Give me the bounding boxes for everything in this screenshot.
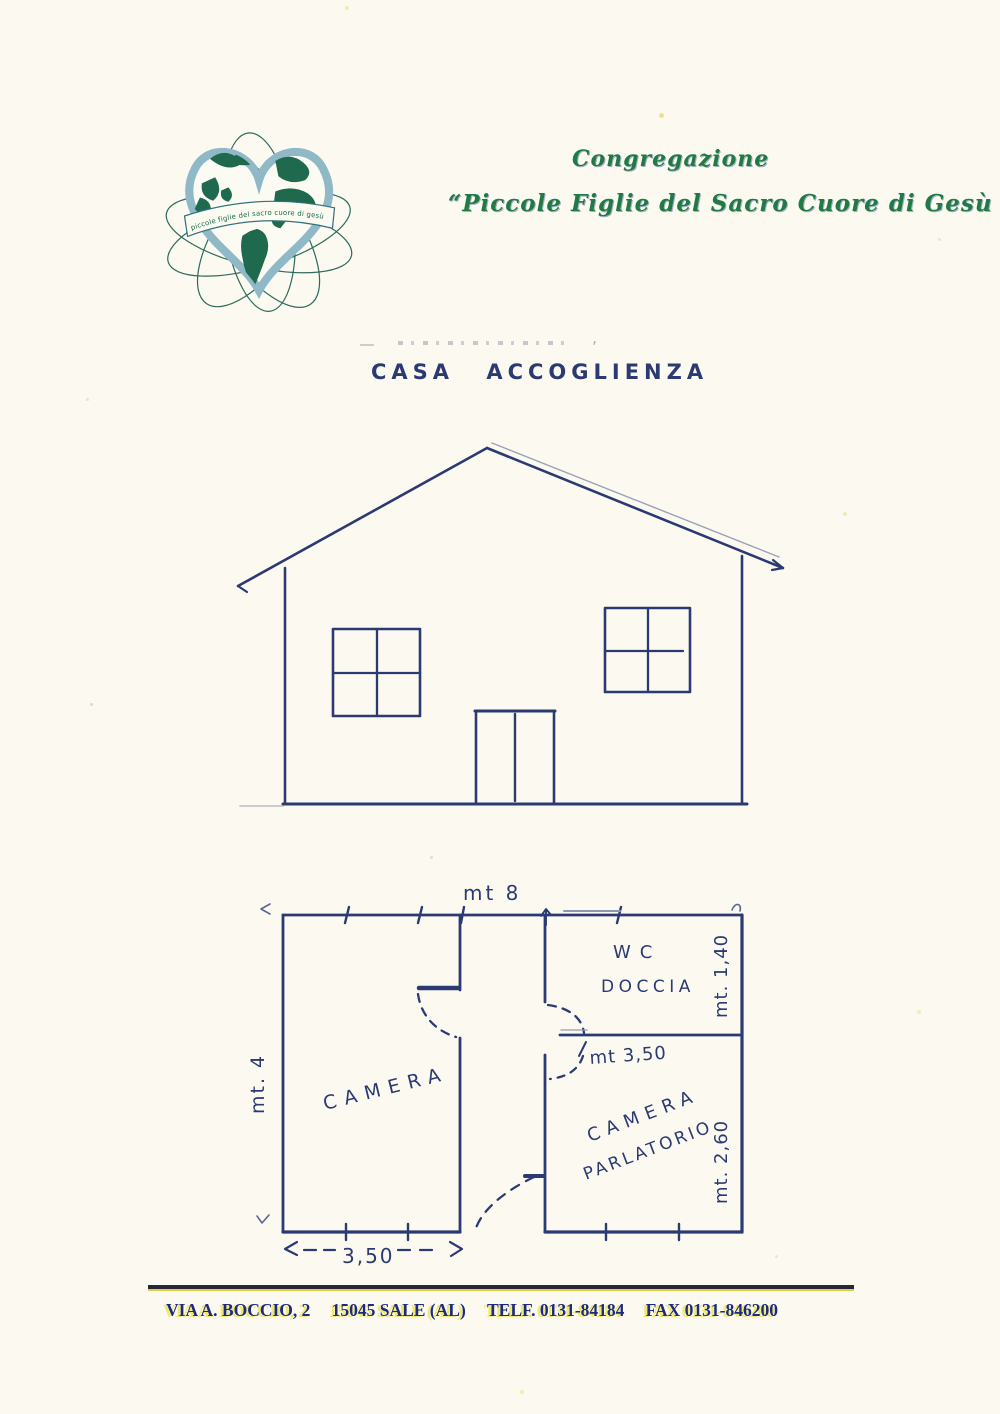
- plan-wc-width-label: mt. 1,40: [711, 934, 732, 1018]
- plan-entry-door: [476, 1176, 543, 1228]
- plan-corner-marks: [257, 904, 740, 1223]
- plan-parlatorio-door: [550, 1056, 583, 1079]
- footer-fax: FAX 0131-846200: [646, 1300, 778, 1321]
- plan-mid-dim-tick: [579, 1042, 586, 1056]
- footer-address-row: VIA A. BOCCIO, 2 15045 SALE (AL) TELF. 0…: [166, 1300, 778, 1321]
- page-title: CASA ACCOGLIENZA: [371, 360, 708, 384]
- congregation-title-line1: Congregazione: [572, 146, 769, 172]
- plan-mid-dim-label: mt 3,50: [589, 1043, 668, 1069]
- erased-pencil-tick: ,: [592, 328, 597, 347]
- congregation-logo: piccole figlie del sacro cuore di gesù: [156, 116, 362, 316]
- erased-pencil-line: [398, 341, 568, 345]
- plan-camera-door: [418, 988, 459, 1037]
- house-left-window: [333, 629, 420, 716]
- erased-pencil-mark: [360, 344, 374, 346]
- floor-plan-drawing: mt 8 mt. 4 CAMERA WC DOCCIA mt 3,50 CAME…: [230, 870, 800, 1270]
- plan-doccia-room-label: DOCCIA: [601, 977, 695, 997]
- footer-divider: [148, 1285, 854, 1291]
- house-elevation-drawing: [230, 440, 800, 820]
- scanned-letterhead-page: piccole figlie del sacro cuore di gesù C…: [0, 0, 1000, 1414]
- plan-camera-room-label: CAMERA: [321, 1063, 451, 1115]
- plan-parlatorio-width-label: mt. 2,60: [711, 1120, 732, 1204]
- plan-wc-room-label: WC: [613, 942, 661, 963]
- house-door: [475, 711, 555, 803]
- congregation-title-line2: “Piccole Figlie del Sacro Cuore di Gesù: [448, 190, 993, 217]
- house-walls: [240, 556, 747, 806]
- house-roof: [238, 443, 783, 592]
- footer-street-address: VIA A. BOCCIO, 2: [166, 1300, 310, 1321]
- house-right-window: [605, 608, 690, 692]
- plan-outer-walls: [283, 915, 742, 1232]
- plan-camera-width-label: 3,50: [342, 1244, 395, 1268]
- plan-wc-floor-wall: [560, 1030, 742, 1035]
- plan-width-label: mt 8: [463, 881, 521, 905]
- footer-city: 15045 SALE (AL): [332, 1300, 466, 1321]
- footer-phone: TELF. 0131-84184: [487, 1300, 624, 1321]
- plan-height-label: mt. 4: [247, 1054, 269, 1114]
- plan-wc-door: [548, 1005, 584, 1033]
